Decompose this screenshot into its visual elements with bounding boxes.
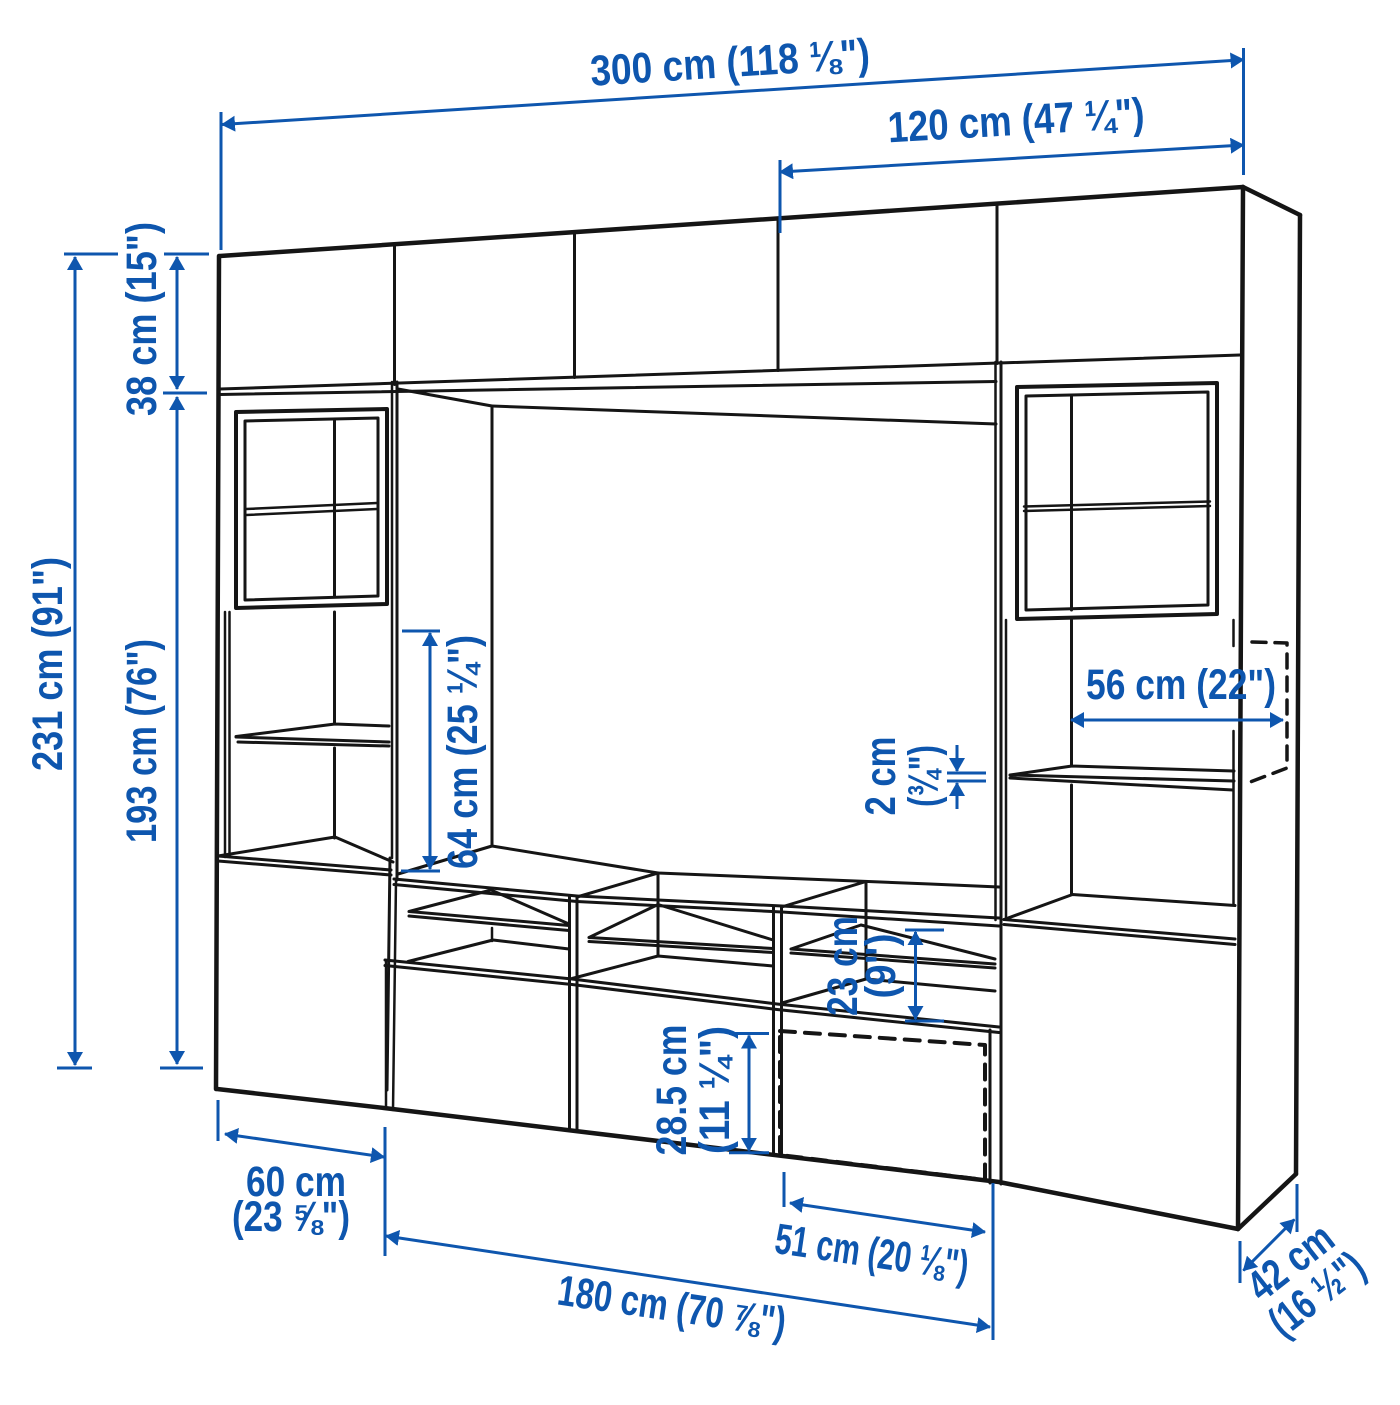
svg-text:56 cm (22"): 56 cm (22") <box>1086 661 1276 709</box>
svg-text:2 cm: 2 cm <box>857 737 905 816</box>
svg-text:(9"): (9") <box>857 934 905 999</box>
svg-text:64 cm (25 ¼"): 64 cm (25 ¼") <box>439 635 487 869</box>
svg-text:193 cm (76"): 193 cm (76") <box>118 639 166 843</box>
svg-text:120 cm (47 ¼"): 120 cm (47 ¼") <box>886 90 1145 153</box>
svg-text:(11 ¼"): (11 ¼") <box>691 1026 739 1154</box>
svg-text:(¾"): (¾") <box>900 745 948 807</box>
svg-text:231 cm (91"): 231 cm (91") <box>24 557 72 771</box>
svg-text:38 cm (15"): 38 cm (15") <box>118 222 166 416</box>
svg-text:28.5 cm: 28.5 cm <box>648 1025 696 1156</box>
svg-text:(23 ⅝"): (23 ⅝") <box>232 1193 350 1241</box>
